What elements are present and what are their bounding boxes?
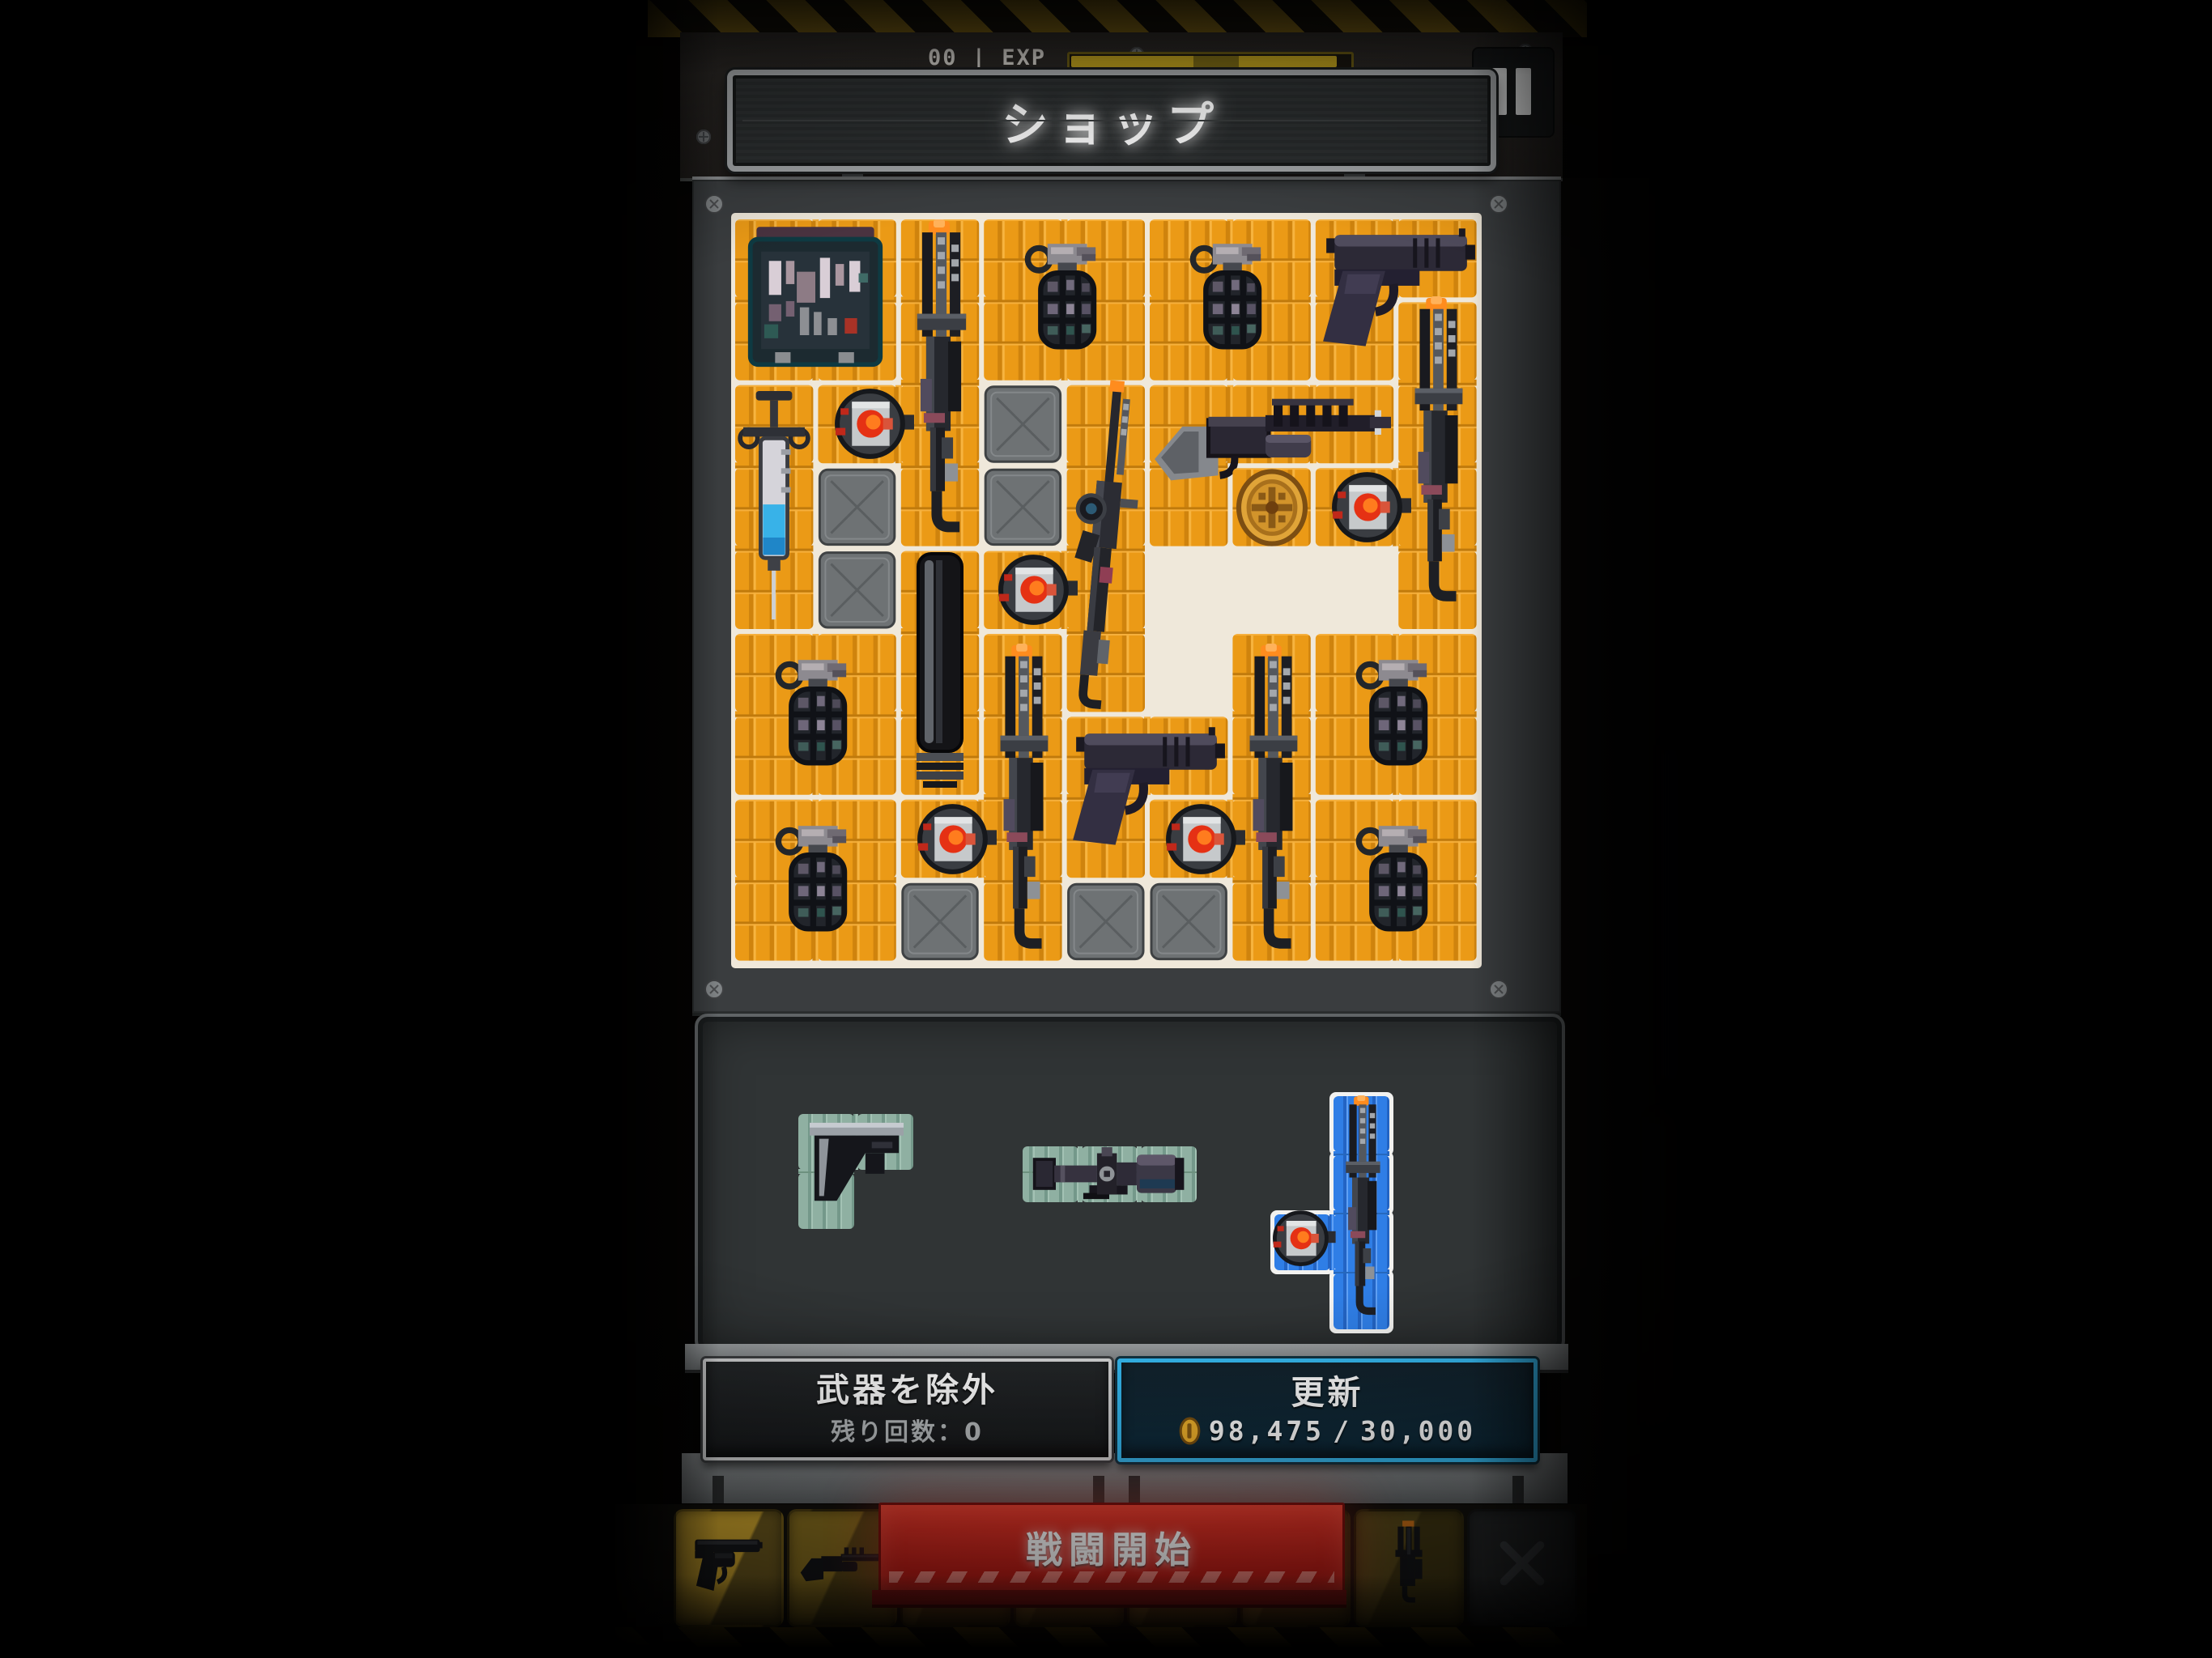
cost-separator: / (1333, 1415, 1352, 1447)
start-battle-label: 戦闘開始 (1026, 1520, 1197, 1573)
shop-offer-scope[interactable] (1023, 1146, 1197, 1202)
x-mark-icon (1494, 1535, 1551, 1592)
screw-icon (696, 130, 711, 144)
bottom-hazard-stripe (615, 1627, 1587, 1656)
refresh-cost-row: 98,475 / 30,000 (1179, 1415, 1476, 1447)
exclude-weapon-button[interactable]: 武器を除外 残り回数：0 (703, 1358, 1112, 1460)
grid-block-grenade-3[interactable] (735, 634, 896, 795)
hazard-stripe-decoration (889, 1571, 1334, 1583)
grid-block-slot-4 (985, 470, 1060, 544)
grid-block-slot-1 (819, 470, 894, 544)
refresh-button[interactable]: 更新 98,475 / 30,000 (1117, 1358, 1538, 1462)
grid-block-grenade-2[interactable] (1150, 219, 1311, 380)
loadout-tile-revolver[interactable] (674, 1509, 784, 1627)
grid-block-slot-2 (819, 553, 894, 627)
grid-block-radio-pack[interactable] (735, 219, 896, 380)
exclude-weapon-label: 武器を除外 (816, 1371, 998, 1409)
grid-block-syringe[interactable] (735, 385, 813, 629)
grid-block-grenade-1[interactable] (984, 219, 1145, 380)
grid-block-grenade-6[interactable] (1316, 800, 1477, 961)
radio-icon (751, 227, 881, 364)
start-battle-base (872, 1590, 1346, 1608)
grid-block-slot-7 (1151, 884, 1226, 959)
gold-owned: 98,475 (1209, 1415, 1325, 1447)
grid-block-slot-5 (903, 884, 977, 959)
remaining-count-label: 残り回数：0 (831, 1412, 984, 1448)
refresh-cost: 30,000 (1360, 1415, 1476, 1447)
grid-block-slot-6 (1069, 884, 1143, 959)
page-title: ショップ (1002, 87, 1222, 155)
shop-offer-minigun-selected[interactable] (1270, 1092, 1393, 1333)
loadout-tile-x-mark[interactable] (1467, 1509, 1577, 1627)
title-face: ショップ (736, 79, 1487, 163)
offers-area[interactable] (695, 1014, 1559, 1347)
loadout-tile-minigun-sil[interactable] (1354, 1509, 1464, 1627)
grid-block-medal[interactable] (1232, 468, 1310, 546)
exp-bar-notch (1193, 56, 1239, 67)
grid-block-slot-3 (985, 387, 1060, 461)
inventory-grid[interactable] (692, 176, 1561, 1010)
grid-block-grenade-5[interactable] (1316, 634, 1477, 795)
shop-offer-stock[interactable] (798, 1114, 913, 1229)
shop-screen: 00 | EXP ショップ (0, 0, 2212, 1658)
minigun-sil-icon (1365, 1520, 1453, 1607)
grid-block-suppressor[interactable] (901, 551, 979, 795)
grid-block-grenade-4[interactable] (735, 800, 896, 961)
background-column (1561, 178, 1682, 1554)
medal-icon (1239, 471, 1305, 543)
refresh-label: 更新 (1291, 1374, 1364, 1412)
pause-icon (1516, 68, 1531, 115)
title-panel: ショップ (727, 70, 1496, 172)
coin-icon (1179, 1417, 1201, 1445)
start-battle-button[interactable]: 戦闘開始 (878, 1503, 1345, 1598)
revolver-icon (685, 1520, 772, 1607)
exp-label: 00 | EXP (928, 45, 1046, 70)
